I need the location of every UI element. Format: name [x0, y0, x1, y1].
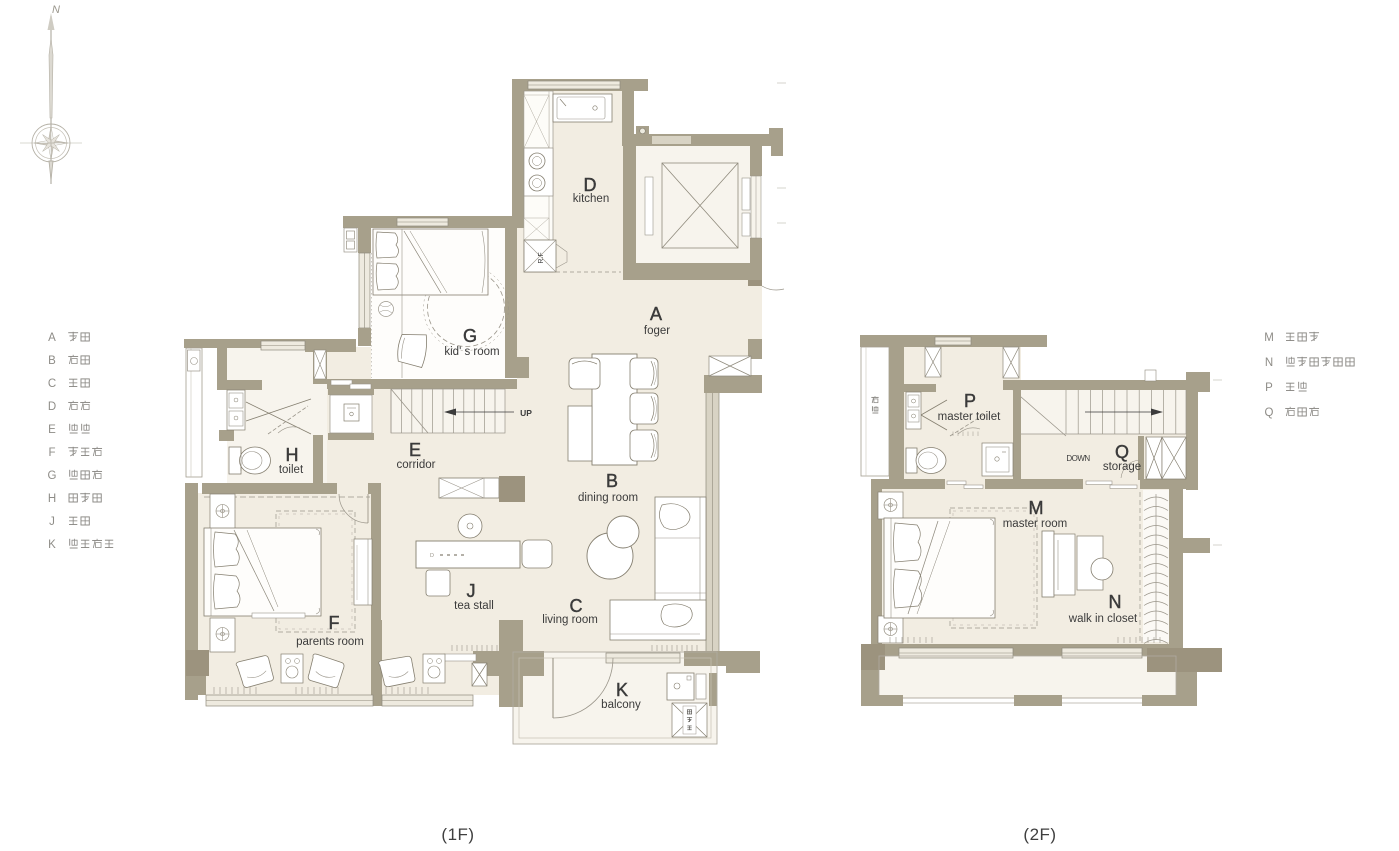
svg-text:toilet: toilet: [279, 464, 304, 476]
svg-text:master room: master room: [1003, 518, 1068, 530]
svg-text:M: M: [1264, 332, 1274, 344]
svg-text:N: N: [1265, 357, 1273, 369]
svg-text:master toilet: master toilet: [938, 411, 1001, 423]
svg-text:parents room: parents room: [296, 636, 364, 648]
svg-text:Q: Q: [1115, 442, 1129, 462]
svg-text:kitchen: kitchen: [573, 193, 609, 205]
svg-text:walk in closet: walk in closet: [1068, 613, 1138, 625]
svg-text:storage: storage: [1103, 461, 1141, 473]
svg-text:H: H: [48, 493, 56, 505]
svg-text:living room: living room: [542, 614, 598, 626]
svg-text:H: H: [286, 445, 299, 465]
svg-text:Q: Q: [1265, 407, 1274, 419]
svg-text:foger: foger: [644, 325, 670, 337]
svg-text:D: D: [48, 401, 56, 413]
svg-text:DOWN: DOWN: [1066, 454, 1090, 463]
svg-text:N: N: [1109, 592, 1122, 612]
svg-text:K: K: [616, 680, 628, 700]
svg-text:G: G: [463, 326, 477, 346]
svg-text:tea stall: tea stall: [454, 600, 494, 612]
svg-text:K: K: [48, 539, 56, 551]
svg-text:E: E: [48, 424, 56, 436]
svg-text:kid' s room: kid' s room: [444, 346, 499, 358]
svg-text:A: A: [48, 332, 56, 344]
svg-text:F: F: [329, 613, 340, 633]
svg-text:N: N: [52, 4, 60, 16]
svg-text:(1F): (1F): [441, 825, 474, 844]
svg-text:J: J: [467, 581, 476, 601]
svg-text:E: E: [409, 440, 421, 460]
svg-text:balcony: balcony: [601, 699, 641, 711]
svg-text:P: P: [964, 391, 976, 411]
svg-text:corridor: corridor: [397, 459, 436, 471]
svg-text:UP: UP: [520, 408, 532, 418]
svg-text:F: F: [48, 447, 55, 459]
svg-text:B: B: [48, 355, 56, 367]
svg-text:C: C: [48, 378, 56, 390]
svg-text:R.F: R.F: [538, 252, 545, 263]
svg-text:D: D: [430, 553, 434, 559]
svg-text:dining room: dining room: [578, 492, 638, 504]
svg-text:(2F): (2F): [1023, 825, 1056, 844]
svg-text:P: P: [1265, 382, 1273, 394]
svg-text:J: J: [49, 516, 55, 528]
svg-text:M: M: [1029, 498, 1044, 518]
svg-text:A: A: [650, 304, 662, 324]
svg-text:G: G: [48, 470, 57, 482]
svg-text:C: C: [570, 596, 583, 616]
svg-text:D: D: [584, 175, 597, 195]
svg-text:B: B: [606, 471, 618, 491]
